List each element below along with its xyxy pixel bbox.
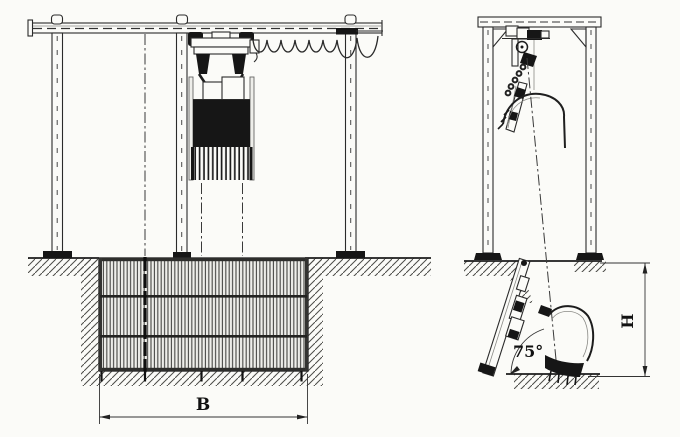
dim-b-arrow-left bbox=[100, 415, 111, 420]
dimension-h: H bbox=[588, 263, 650, 377]
column-cap-right bbox=[345, 15, 356, 24]
screen-edge-right bbox=[305, 258, 308, 371]
pit-wall-hatch-left bbox=[81, 258, 99, 372]
ground-hatch-right bbox=[305, 258, 431, 276]
hoist-end-box bbox=[541, 31, 549, 38]
hoist-leg-right bbox=[232, 54, 246, 74]
monorail-beam bbox=[28, 20, 382, 36]
cable-drop bbox=[254, 53, 257, 62]
dimension-h-label: H bbox=[618, 313, 637, 328]
technical-drawing-page: B bbox=[0, 0, 680, 437]
frame-base-rear bbox=[576, 253, 604, 260]
grab-gear-box bbox=[222, 77, 244, 100]
portal-frame-side bbox=[474, 17, 604, 260]
stored-rake-side bbox=[498, 82, 565, 148]
dimension-b-label: B bbox=[196, 395, 210, 415]
bar-screen-rake-cleaner-drawing: B bbox=[0, 0, 680, 437]
rake-bucket-side bbox=[538, 305, 593, 385]
grab-tine-end-right bbox=[250, 147, 253, 180]
hoist-pulley-axle bbox=[521, 46, 524, 49]
trolley-lower-plate bbox=[194, 47, 248, 54]
screen-bottom-band bbox=[99, 368, 308, 371]
screen-support-band-lower bbox=[100, 335, 307, 338]
column-base-left bbox=[43, 251, 72, 258]
hoist-hanger bbox=[512, 39, 518, 66]
frame-base-front bbox=[474, 253, 502, 260]
hoist-trolley-box bbox=[506, 26, 518, 36]
screen-edge-left bbox=[99, 258, 102, 371]
grab-tine-end-left bbox=[191, 147, 194, 180]
column-base-right bbox=[336, 251, 365, 258]
grab-body bbox=[193, 100, 250, 147]
dim-b-arrow-right bbox=[297, 415, 308, 420]
angle-label: 75° bbox=[513, 342, 543, 361]
column-base-middle bbox=[173, 252, 191, 258]
grab-tines bbox=[194, 147, 250, 180]
pit-floor-hatch-side bbox=[514, 374, 599, 389]
trolley-frame-plate bbox=[191, 38, 251, 47]
hoist-leg-left bbox=[196, 54, 210, 74]
dim-h-arrow-bottom bbox=[643, 366, 648, 377]
column-cap-left bbox=[52, 15, 63, 24]
screen-support-band-upper bbox=[100, 295, 307, 298]
screen-top-band bbox=[99, 258, 308, 261]
corner-gusset-right bbox=[571, 29, 586, 47]
dim-h-arrow-top bbox=[643, 263, 648, 274]
festoon-bracket bbox=[336, 28, 358, 35]
side-view: 75° H bbox=[464, 17, 650, 389]
trajectory-centerline bbox=[527, 58, 557, 370]
bucket-inner-curve bbox=[552, 311, 588, 357]
grab-motor-box bbox=[203, 82, 223, 100]
column-cap-middle bbox=[177, 15, 188, 24]
screen-field bbox=[99, 258, 308, 371]
hoist-trolley bbox=[188, 32, 259, 74]
screen-top-pivot bbox=[521, 260, 527, 266]
grab-rake-front bbox=[189, 74, 254, 180]
festoon-loops bbox=[253, 36, 378, 58]
bar-screen-front bbox=[99, 257, 308, 382]
beam-end-cap-left bbox=[28, 20, 33, 36]
front-view: B bbox=[28, 15, 431, 424]
